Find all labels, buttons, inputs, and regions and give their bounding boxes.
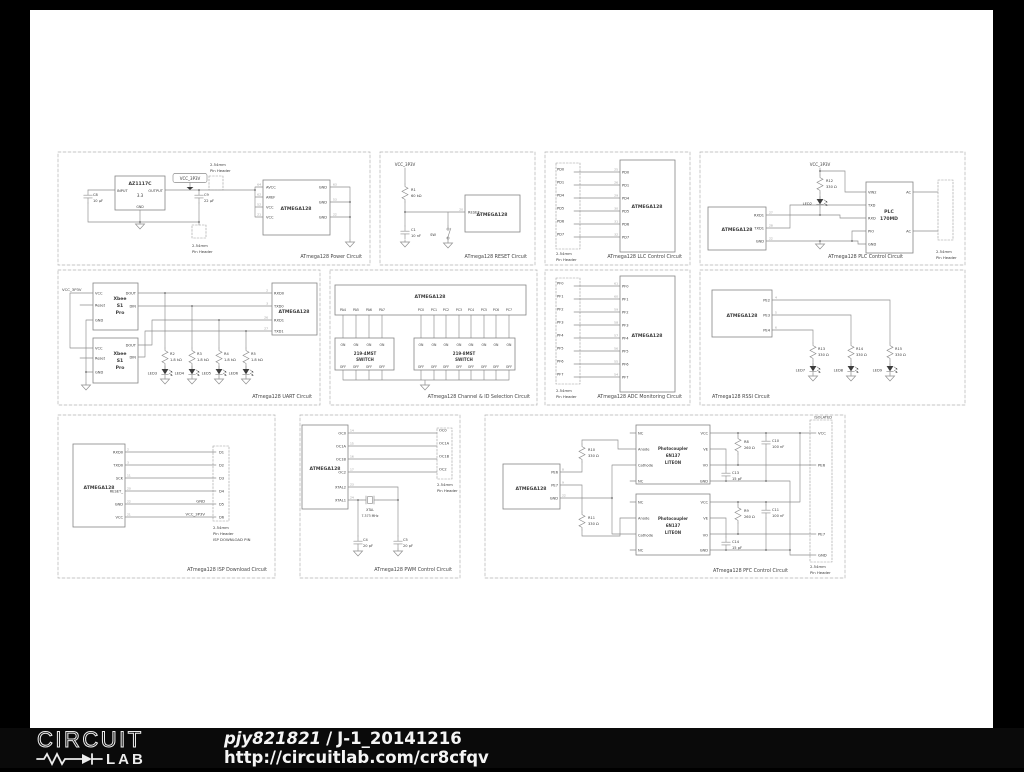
value-label: 330 Ω [588, 454, 599, 458]
pin-number: 57 [614, 334, 618, 338]
value-label: 1.8 kΩ [251, 358, 263, 362]
pin-label: AVCC [266, 186, 276, 190]
pin-label: GND [700, 480, 708, 484]
part-name: AZ1117C [128, 181, 152, 187]
part-name: R13 [818, 347, 825, 351]
part-name: R2 [170, 352, 175, 356]
pin-label: PIO [868, 230, 874, 234]
pin-number: 8 [562, 468, 564, 472]
pin-label: PA5 [353, 308, 359, 312]
switch-state-label: OFF [340, 365, 346, 369]
pin-label: VCC [701, 432, 709, 436]
pin-label: PD1 [622, 184, 629, 188]
part-name: LITEON [665, 530, 681, 535]
part-name: ATMEGA128 [632, 333, 663, 339]
switch-state-label: ON [444, 343, 450, 347]
switch-state-label: OFF [481, 365, 487, 369]
part-name: ATMEGA128 [632, 204, 663, 210]
part-name: R12 [826, 179, 833, 183]
value-label: 10 µF [93, 199, 103, 203]
username: pjy821821 [224, 729, 321, 748]
value-label: 260 Ω [744, 446, 755, 450]
part-name: C10 [772, 439, 780, 443]
pin-label: VCC [266, 216, 274, 220]
net-label: VCC_3P3V [62, 287, 82, 292]
value-label: 7.373 MHz [362, 514, 379, 518]
block-title: ATmega128 RESET Circuit [465, 254, 528, 260]
pin-label: PD0 [557, 168, 565, 172]
value-label: 1.8 kΩ [224, 358, 236, 362]
value-label: 330 Ω [818, 353, 829, 357]
pin-label: OC0 [439, 429, 447, 433]
value-label: 330 Ω [826, 185, 837, 189]
pin-label: PC1 [431, 308, 437, 312]
pin-label: RXD0 [274, 292, 285, 296]
pin-label: Cathode [638, 534, 654, 538]
pin-label: OC1B [336, 458, 347, 462]
part-name: Photocoupler [658, 516, 688, 521]
block-title: ATmega128 ADC Monitoring Circuit [597, 394, 682, 400]
pin-label: PD5 [622, 210, 629, 214]
logo-circuit-text: CIRCUIT [36, 729, 186, 751]
net-label: PE7 [818, 532, 826, 537]
value-label: 1.8 kΩ [170, 358, 182, 362]
header-label: 2.54mm [936, 249, 952, 254]
pin-label: PF4 [622, 337, 629, 341]
pin-label: TXD0 [112, 464, 123, 468]
pin-number: 27 [769, 211, 773, 215]
block-title: ATmega128 LLC Control Circuit [607, 254, 682, 260]
pin-label: PD6 [557, 220, 565, 224]
pin-label: D2 [219, 464, 224, 468]
pin-number: 55 [614, 360, 618, 364]
part-name: SWITCH [356, 357, 374, 362]
pin-number: 23 [350, 483, 354, 487]
part-name: ATMEGA128 [516, 486, 547, 492]
block-title: ATmega128 Power Circuit [300, 254, 362, 260]
pin-label: PF0 [622, 285, 629, 289]
pin-label: PF5 [622, 350, 629, 354]
pin-label: PD7 [622, 236, 629, 240]
switch-state-label: ON [469, 343, 475, 347]
value-label: 1.8 kΩ [197, 358, 209, 362]
pin-label: PF7 [622, 376, 629, 380]
part-name: PLC [884, 209, 894, 215]
pin-label: GND [700, 549, 708, 553]
value-label: 20 pF [403, 544, 413, 548]
switch-state-label: ON [367, 343, 373, 347]
value-label: 20 pF [363, 544, 373, 548]
pin-label: XTAL1 [335, 499, 346, 503]
pin-label: DOUT [126, 344, 137, 348]
part-name: Photocoupler [658, 446, 688, 451]
part-name: ATMEGA128 [279, 309, 310, 315]
pin-label: VIN2 [868, 191, 877, 195]
pin-number: 61 [614, 282, 618, 286]
circuit-url: http://circuitlab.com/cr8cfqv [224, 748, 489, 767]
pin-number: 6 [775, 326, 777, 330]
part-name: S1 [117, 358, 124, 364]
switch-state-label: OFF [456, 365, 462, 369]
pin-label: VO [703, 464, 708, 468]
switch-state-label: ON [507, 343, 513, 347]
pin-label: PF6 [622, 363, 629, 367]
block-title: ATmega128 ISP Download Circuit [187, 567, 267, 573]
part-name: C9 [204, 193, 210, 197]
value-label: 10 nF [411, 234, 421, 238]
pin-label: PE7 [551, 484, 558, 488]
pin-label: RXD1 [754, 214, 764, 218]
switch-state-label: ON [354, 343, 360, 347]
pin-label: VCC [266, 206, 274, 210]
pin-label: PC7 [506, 308, 512, 312]
part-name: LED7 [796, 369, 805, 373]
part-name: LED4 [175, 372, 185, 376]
block-title: ATmega128 PFC Control Circuit [713, 568, 788, 574]
pin-number: 25 [614, 168, 618, 172]
header-label: Pin Header [437, 488, 458, 493]
pin-label: PD7 [557, 233, 564, 237]
pin-label: VCC [116, 516, 124, 520]
pin-number: 15 [350, 442, 354, 446]
pin-label: RXD0 [113, 451, 124, 455]
logo-bottom-row: LAB [36, 751, 196, 768]
pin-label: PC4 [468, 308, 474, 312]
pin-label: AC [906, 230, 911, 234]
pin-label: GND [95, 319, 103, 323]
value-label: 15 pF [732, 546, 742, 550]
pin-label: PF3 [557, 321, 564, 325]
pin-label: PF6 [557, 360, 564, 364]
pin-number: 5 [775, 311, 777, 315]
part-name: ATMEGA128 [722, 227, 753, 233]
pin-label: PF5 [557, 347, 564, 351]
switch-state-label: ON [432, 343, 438, 347]
pin-label: DIN [129, 305, 136, 309]
pin-label: TXD [867, 204, 876, 208]
pin-label: PC0 [418, 308, 424, 312]
pin-number: 21 [257, 213, 261, 217]
part-name: C1 [411, 228, 416, 232]
block-title: ATmega128 Channel & ID Selection Circuit [428, 394, 530, 400]
pin-label: GND [95, 371, 103, 375]
pin-number: 2 [266, 289, 268, 293]
pin-number: 22 [769, 237, 773, 241]
pin-label: DIN [129, 356, 136, 360]
pin-number: 11 [127, 474, 131, 478]
part-name: LED8 [834, 369, 844, 373]
pin-label: PE6 [551, 471, 558, 475]
part-name: C14 [732, 540, 740, 544]
value-label: 22 µF [204, 199, 214, 203]
pin-label: INPUT [117, 189, 129, 193]
pin-label: Reset [95, 357, 106, 361]
part-name: LITEON [665, 460, 681, 465]
part-name: LED6 [229, 372, 239, 376]
switch-state-label: OFF [468, 365, 474, 369]
header-label: 2.54mm [437, 482, 453, 487]
pin-label: AC [906, 191, 911, 195]
pin-number: 3 [266, 302, 268, 306]
switch-state-label: ON [419, 343, 425, 347]
part-name: LED3 [148, 372, 157, 376]
pin-number: 22 [562, 494, 566, 498]
header-label: Pin Header [556, 394, 577, 399]
pin-number: 58 [614, 321, 618, 325]
part-name: R8 [744, 440, 749, 444]
switch-state-label: OFF [443, 365, 449, 369]
pin-label: GND [868, 243, 876, 247]
logo-lab-text: LAB [106, 751, 146, 768]
pin-label: PF4 [557, 334, 564, 338]
switch-state-label: ON [494, 343, 500, 347]
attribution: pjy821821/J-1_20141216 http://circuitlab… [224, 729, 489, 767]
header-label: 2.54mm [810, 564, 826, 569]
pin-label: D1 [219, 451, 224, 455]
pin-number: 21 [127, 513, 131, 517]
pin-label: OC2 [338, 471, 346, 475]
part-name: SWITCH [455, 357, 473, 362]
switch-state-label: OFF [493, 365, 499, 369]
pin-label: GND [756, 240, 764, 244]
pin-label: VCC [95, 292, 103, 296]
switch-state-label: OFF [431, 365, 437, 369]
pin-label: D6 [219, 516, 225, 520]
part-name: C8 [93, 193, 99, 197]
pin-label: PC6 [493, 308, 499, 312]
pin-number: 53 [333, 198, 337, 202]
pin-label: PF2 [557, 308, 564, 312]
pin-number: 20 [459, 208, 463, 212]
pin-number: 4 [775, 296, 777, 300]
block-title: ATmega128 UART Circuit [252, 394, 312, 400]
pin-label: AREF [266, 196, 275, 200]
pin-number: 9 [562, 481, 564, 485]
switch-state-label: ON [341, 343, 347, 347]
pin-label: PC2 [443, 308, 449, 312]
header-label: Pin Header [210, 168, 231, 173]
pin-label: PD4 [557, 194, 565, 198]
logo-circuit-label: CIRCUIT [37, 729, 144, 751]
project-name: J-1_20141216 [337, 729, 462, 748]
pin-label: OC1A [439, 442, 450, 446]
part-name: 6N137 [666, 453, 681, 458]
part-name: ATMEGA128 [415, 294, 446, 300]
pin-number: 14 [350, 429, 354, 433]
part-name: 6N137 [666, 523, 681, 528]
part-name: C5 [403, 538, 408, 542]
pin-label: PF2 [622, 311, 629, 315]
footer-bar: CIRCUIT LAB pjy821821/J-1_20141216 http:… [0, 728, 1024, 768]
header-label: 2.54mm [192, 243, 208, 248]
part-name: 219-4MST [354, 351, 377, 356]
switch-state-label: OFF [366, 365, 372, 369]
pin-label: TXD1 [753, 227, 764, 231]
switch-state-label: OFF [353, 365, 359, 369]
pin-number: 63 [333, 183, 337, 187]
switch-state-label: ON [482, 343, 488, 347]
pin-label: PF3 [622, 324, 629, 328]
pin-label: PA6 [366, 308, 372, 312]
pin-number: 60 [614, 295, 618, 299]
pin-label: GND [550, 497, 558, 501]
pin-label: TXD1 [273, 330, 284, 334]
pin-label: GND [319, 216, 327, 220]
part-name: R1 [411, 188, 416, 192]
pin-number: 32 [614, 233, 618, 237]
pin-label: XTAL2 [335, 486, 346, 490]
pin-label: SCK [116, 477, 124, 481]
pin-number: 64 [257, 183, 261, 187]
header-label: Pin Header [936, 255, 957, 260]
pin-label: VE [703, 448, 708, 452]
part-name: R5 [251, 352, 256, 356]
pin-label: Reset [95, 304, 106, 308]
net-label: VCC [818, 431, 826, 436]
part-name: R4 [224, 352, 229, 356]
header-label: ISP DOWNLOAD PIN [213, 537, 251, 542]
resistor-diode-icon [36, 752, 104, 766]
pin-label: NC [638, 501, 644, 505]
pin-number: 2 [127, 448, 129, 452]
part-name: LED2 [803, 202, 812, 206]
block-title: ATmega128 PLC Control Circuit [828, 254, 903, 260]
pin-label: OC0 [338, 432, 346, 436]
pin-label: OUTPUT [148, 189, 163, 193]
header-label: Pin Header [213, 531, 234, 536]
pin-number: 52 [257, 203, 261, 207]
pin-number: 27 [264, 327, 268, 331]
part-name: 170MD [880, 216, 898, 222]
part-name: LED5 [202, 372, 211, 376]
schematic-page: AZ1117C 3.3 INPUT OUTPUT GND C8 10 µF C9… [0, 0, 1024, 768]
header-label: Pin Header [810, 570, 831, 575]
pin-number: 26 [264, 316, 268, 320]
part-name: Pro [116, 365, 125, 371]
pin-label: PF0 [557, 282, 564, 286]
part-name: ATMEGA128 [727, 313, 758, 319]
pin-label: NC [638, 480, 644, 484]
net-label: PE6 [818, 463, 826, 468]
pin-label: PD4 [622, 197, 630, 201]
pin-number: 17 [350, 468, 354, 472]
switch-state-label: OFF [418, 365, 424, 369]
value-label: 3.3 [137, 193, 144, 198]
separator: / [326, 729, 332, 748]
value-label: 15 pF [732, 477, 742, 481]
pin-number: 22 [333, 213, 337, 217]
pin-label: PE3 [763, 314, 770, 318]
pin-label: PC3 [456, 308, 462, 312]
value-label: 100 nF [772, 514, 784, 518]
pin-label: DOUT [126, 292, 137, 296]
pin-number: 22 [127, 500, 131, 504]
part-name: XTAL [366, 508, 374, 512]
pin-number: 31 [614, 220, 618, 224]
pin-label: GND [319, 186, 327, 190]
pin-label: PD6 [622, 223, 630, 227]
pin-label: RXD1 [274, 319, 284, 323]
schematic-canvas: AZ1117C 3.3 INPUT OUTPUT GND C8 10 µF C9… [0, 0, 1024, 768]
header-label: Pin Header [556, 257, 577, 262]
part-name: S1 [117, 303, 124, 309]
switch-state-label: OFF [379, 365, 385, 369]
part-name: Xbee [113, 296, 126, 302]
pin-label: D4 [219, 490, 225, 494]
net-label: GND [818, 553, 827, 558]
pin-number: 24 [350, 496, 354, 500]
pin-label: PE4 [763, 329, 770, 333]
part-name: R15 [895, 347, 902, 351]
part-name: C11 [772, 508, 779, 512]
pin-label: D5 [219, 503, 224, 507]
pin-label: PE2 [763, 299, 770, 303]
author-project-line: pjy821821/J-1_20141216 [224, 729, 489, 748]
pin-number: 28 [769, 224, 773, 228]
pin-label: OC1A [336, 445, 347, 449]
pin-label: PD0 [622, 171, 630, 175]
value-label: 60 kΩ [411, 194, 422, 198]
value-label: 100 nF [772, 445, 784, 449]
part-name: R10 [588, 448, 596, 452]
pin-number: 30 [614, 207, 618, 211]
pin-label: VCC [701, 501, 709, 505]
pin-label: D3 [219, 477, 224, 481]
block-title: ATmega128 RSSI Circuit [712, 394, 770, 400]
part-name: C4 [363, 538, 369, 542]
pin-number: 3 [127, 461, 129, 465]
isolation-label: ISOLATED [814, 416, 832, 420]
pin-label: PD1 [557, 181, 564, 185]
part-name: ATMEGA128 [281, 206, 312, 212]
switch-state-label: OFF [506, 365, 512, 369]
part-name: R9 [744, 509, 749, 513]
pin-label: PC5 [481, 308, 487, 312]
part-name: C13 [732, 471, 739, 475]
pin-number: 16 [350, 455, 354, 459]
pin-label: PA4 [340, 308, 346, 312]
header-label: Pin Header [192, 249, 213, 254]
pin-label: VO [703, 534, 708, 538]
value-label: 330 Ω [856, 353, 867, 357]
pin-label: PF1 [557, 295, 564, 299]
pin-number: 29 [614, 194, 618, 198]
net-label: GND [196, 499, 205, 504]
pin-label: Anode [638, 517, 650, 521]
part-name: 219-8MST [453, 351, 476, 356]
pin-number: 26 [614, 181, 618, 185]
net-label: VCC_3P3V [180, 176, 201, 181]
junction-dot [404, 211, 406, 213]
pin-label: GND [319, 201, 327, 205]
pin-label: RXD [868, 217, 876, 221]
pin-label: GND [115, 503, 123, 507]
part-name: ATMEGA128 [310, 466, 341, 472]
part-name: Xbee [113, 351, 126, 357]
pin-label: TXD0 [273, 305, 284, 309]
pin-label: PF1 [622, 298, 629, 302]
pin-label: RESET_ [110, 490, 124, 494]
net-label: VCC_3P3V [810, 162, 831, 167]
header-label: 2.54mm [210, 162, 226, 167]
part-name: Pro [116, 310, 125, 316]
header-label: 2.54mm [213, 525, 229, 530]
value-label: 330 Ω [895, 353, 906, 357]
net-label: VCC_3P3V [185, 512, 205, 517]
pin-number: 20 [127, 487, 131, 491]
block-title: ATmega128 PWM Control Circuit [374, 567, 452, 573]
net-label: VCC_3P3V [395, 162, 416, 167]
